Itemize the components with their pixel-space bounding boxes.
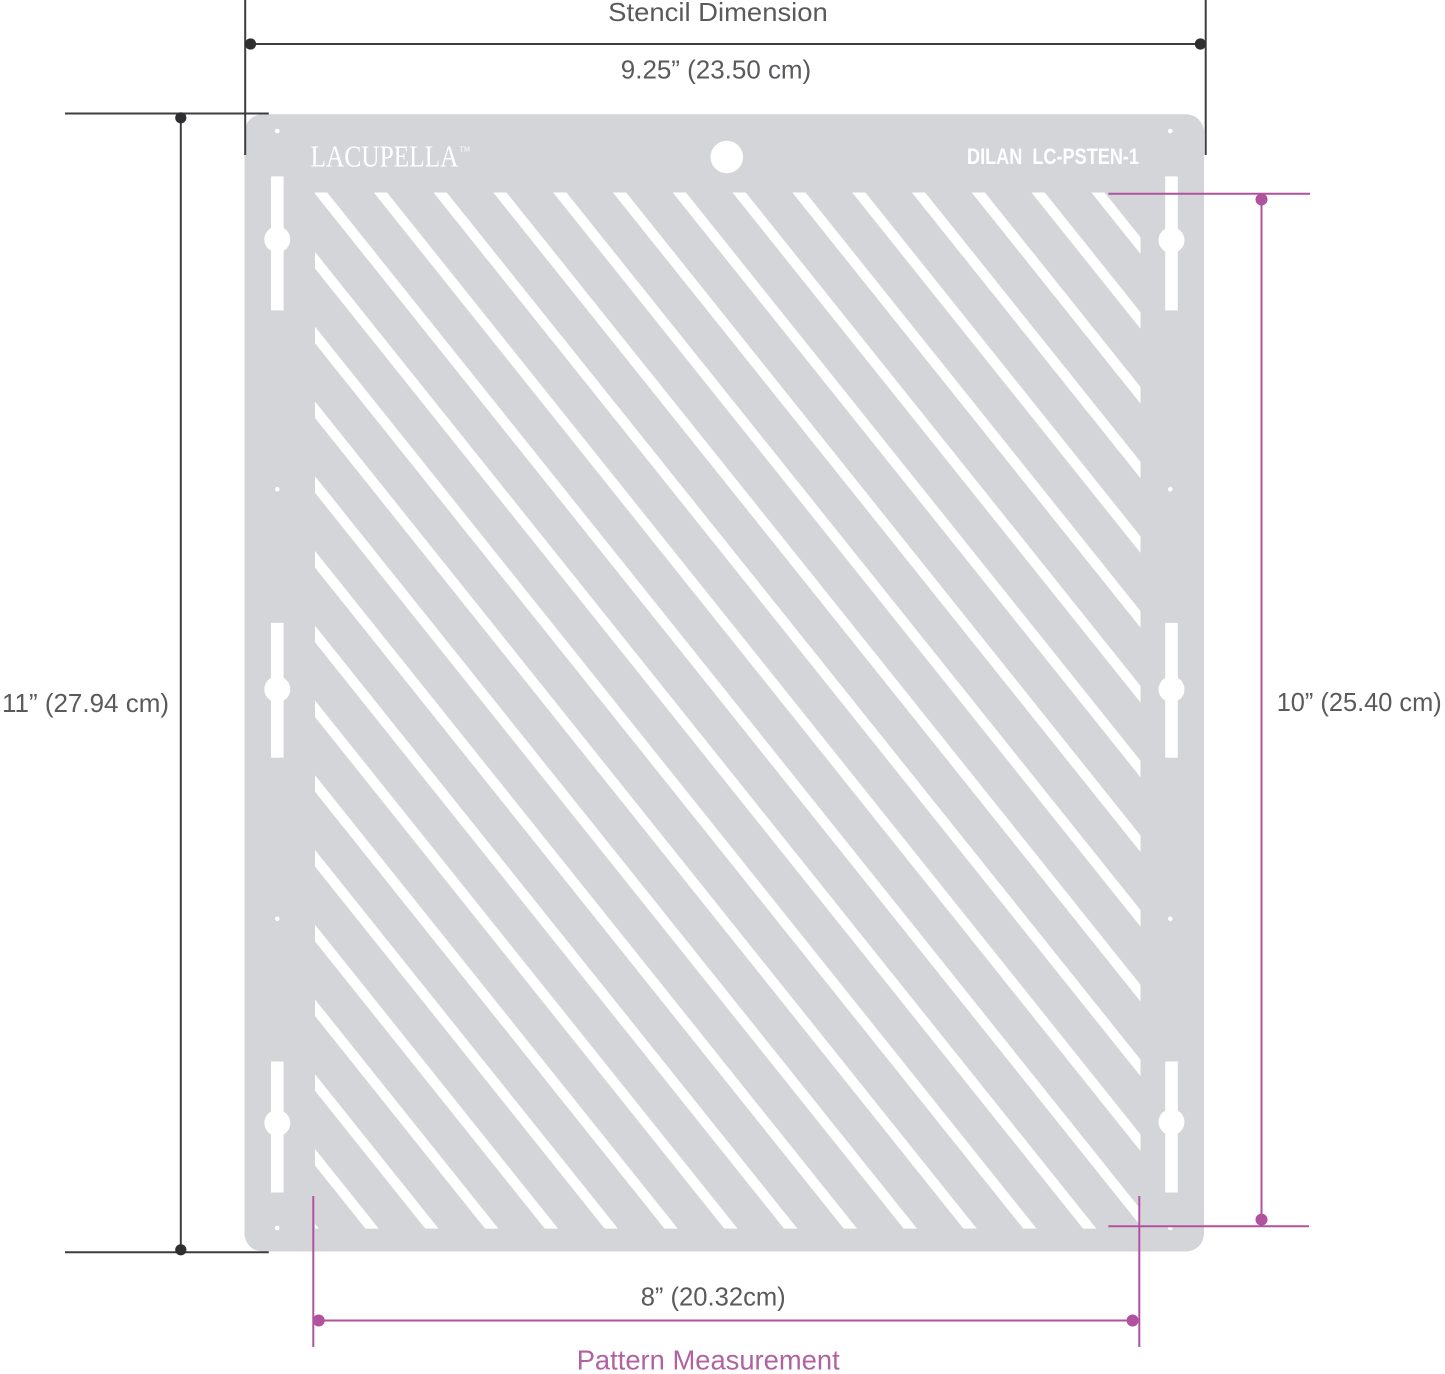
svg-text:9.25” (23.50 cm): 9.25” (23.50 cm) <box>621 55 811 85</box>
svg-text:11” (27.94 cm): 11” (27.94 cm) <box>2 688 169 718</box>
svg-text:TM: TM <box>460 146 471 154</box>
svg-text:8” (20.32cm): 8” (20.32cm) <box>641 1281 786 1311</box>
svg-text:DILAN LC-PSTEN-1: DILAN LC-PSTEN-1 <box>967 144 1139 169</box>
svg-text:Pattern Measurement: Pattern Measurement <box>577 1345 840 1374</box>
svg-text:Stencil Dimension: Stencil Dimension <box>608 0 828 27</box>
svg-text:10” (25.40 cm): 10” (25.40 cm) <box>1277 687 1442 717</box>
svg-text:LACUPELLA: LACUPELLA <box>311 139 459 174</box>
